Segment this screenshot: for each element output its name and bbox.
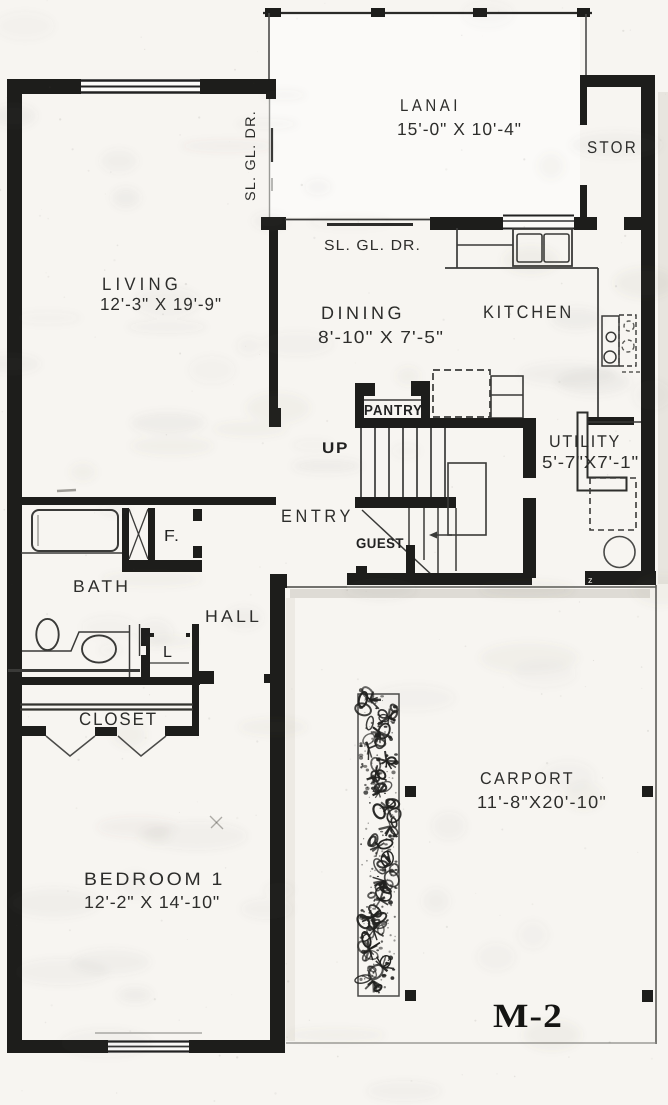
svg-text:12'-2" X 14'-10": 12'-2" X 14'-10" — [84, 892, 220, 912]
svg-text:ENTRY: ENTRY — [281, 506, 354, 526]
svg-text:BEDROOM 1: BEDROOM 1 — [84, 869, 225, 889]
svg-text:L: L — [163, 644, 172, 661]
svg-text:F.: F. — [164, 528, 180, 545]
svg-text:z: z — [588, 575, 593, 585]
svg-text:SL. GL. DR.: SL. GL. DR. — [324, 238, 421, 254]
svg-text:5'-7"X7'-1": 5'-7"X7'-1" — [542, 452, 639, 472]
svg-text:PANTRY: PANTRY — [364, 403, 423, 419]
svg-text:15'-0" X 10'-4": 15'-0" X 10'-4" — [397, 119, 522, 139]
svg-text:GUEST: GUEST — [356, 535, 404, 551]
svg-text:M-2: M-2 — [493, 998, 563, 1035]
svg-text:DINING: DINING — [321, 303, 405, 323]
svg-text:LANAI: LANAI — [400, 96, 461, 115]
svg-text:8'-10" X 7'-5": 8'-10" X 7'-5" — [318, 327, 444, 347]
svg-text:UTILITY: UTILITY — [549, 432, 621, 451]
